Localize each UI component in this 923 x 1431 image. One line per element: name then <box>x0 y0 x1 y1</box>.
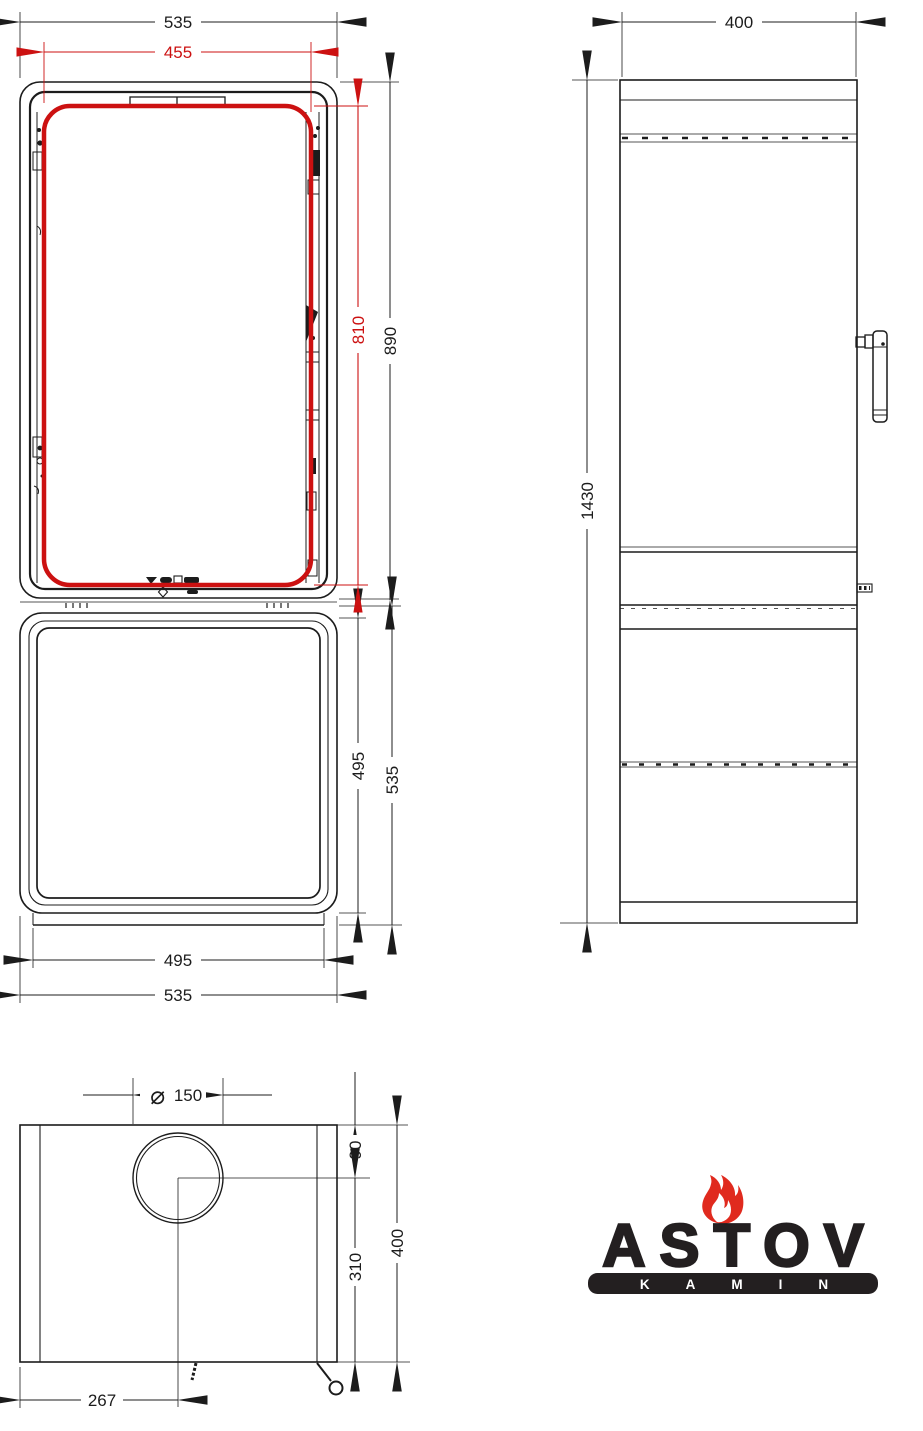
dim-label-flue-from-rear: 90 <box>346 1141 365 1160</box>
dim-label-glass-width: 455 <box>164 43 192 62</box>
door-handle-side <box>856 331 887 422</box>
dim-front-base-inner-width: 495 <box>33 928 324 970</box>
stove-drawing-svg: 535 890 495 535 <box>0 0 923 1431</box>
dim-label-overall-height: 1430 <box>578 482 597 520</box>
brand-wordmark: ASTOV <box>602 1212 878 1279</box>
front-view: 535 890 495 535 <box>20 12 402 1005</box>
dim-label-glass-height: 810 <box>349 316 368 344</box>
front-base-body <box>20 613 337 925</box>
dim-side-depth: 400 <box>622 12 856 77</box>
handle-rod-plan <box>317 1363 331 1381</box>
dim-front-base-inner-height: 495 <box>339 618 368 913</box>
front-firebox-body <box>20 82 337 598</box>
dim-label-base-inner-width: 495 <box>164 951 192 970</box>
base-latch-pin-side <box>857 584 872 592</box>
dim-flue-to-front: 310 <box>346 1178 365 1362</box>
glass-opening-outline <box>44 106 311 585</box>
dim-label-upper-height: 890 <box>381 327 400 355</box>
dim-label-base-inner-height: 495 <box>349 752 368 780</box>
dim-label-base-overall-width: 535 <box>164 986 192 1005</box>
plan-view: ⌀ 150 90 310 400 267 <box>20 1072 410 1410</box>
dim-label-base-overall-height: 535 <box>383 766 402 794</box>
latch-pin-plan <box>192 1363 196 1380</box>
brand-tagline: KAMIN <box>640 1277 864 1292</box>
side-body <box>620 80 857 923</box>
dim-glass-height: 810 <box>314 106 368 585</box>
dim-flue-from-left: 267 <box>20 1367 178 1410</box>
front-divider <box>20 602 337 608</box>
dim-label-flue-diameter: 150 <box>174 1086 202 1105</box>
dim-label-flue-from-left: 267 <box>88 1391 116 1410</box>
handle-knob-plan <box>330 1382 343 1395</box>
dim-plan-depth: 400 <box>388 1125 407 1362</box>
dim-label-plan-depth: 400 <box>388 1229 407 1257</box>
dim-label-side-depth: 400 <box>725 13 753 32</box>
diameter-symbol: ⌀ <box>149 1081 164 1110</box>
side-view: 400 1430 <box>560 12 887 923</box>
dim-label-flue-to-front: 310 <box>346 1253 365 1281</box>
dim-label-front-width: 535 <box>164 13 192 32</box>
dim-side-overall-height: 1430 <box>560 80 618 923</box>
technical-drawing-page: 535 890 495 535 <box>0 0 923 1431</box>
dim-flue-from-rear: 90 <box>346 1072 365 1165</box>
brand-logo: ASTOV KAMIN <box>588 1175 878 1294</box>
dim-flue-diameter: ⌀ 150 <box>83 1078 272 1124</box>
